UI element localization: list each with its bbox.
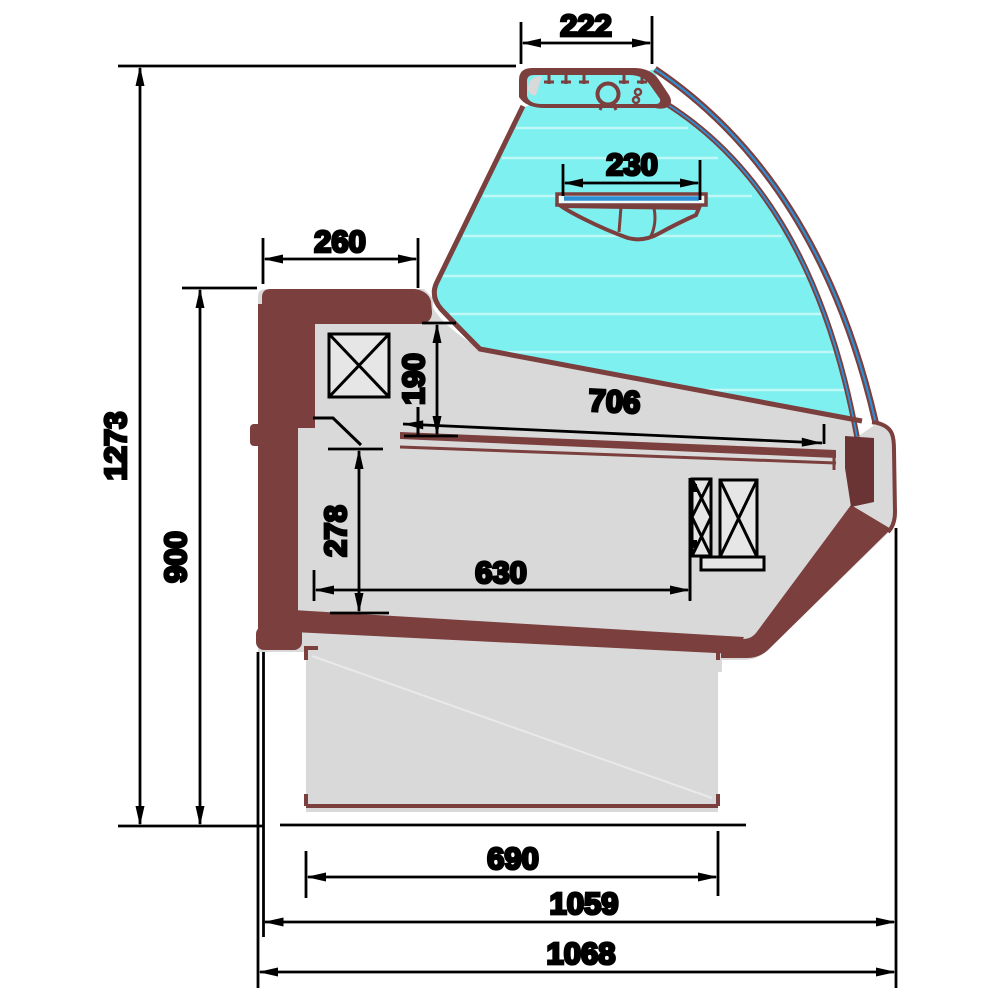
dim-260: 260 bbox=[263, 224, 418, 288]
dim-label-706: 706 bbox=[588, 383, 641, 420]
top-canopy bbox=[519, 68, 671, 110]
dim-label-900: 900 bbox=[158, 531, 193, 583]
dim-222: 222 bbox=[521, 8, 652, 64]
inner-duct-band bbox=[298, 318, 315, 428]
dim-1273: 1273 bbox=[98, 66, 145, 826]
technical-drawing-page: 222 230 260 190 706 bbox=[0, 0, 1000, 1000]
dim-label-1068: 1068 bbox=[547, 936, 616, 971]
dim-label-278: 278 bbox=[318, 505, 353, 557]
insulation-box bbox=[329, 334, 389, 397]
rear-wall-bulge bbox=[250, 424, 262, 446]
dim-1059: 1059 bbox=[264, 886, 897, 927]
dim-690: 690 bbox=[306, 831, 718, 898]
evaporator-box bbox=[720, 480, 757, 557]
display-case-cross-section: 222 230 260 190 706 bbox=[0, 0, 1000, 1000]
dim-label-230: 230 bbox=[606, 147, 658, 182]
dim-label-222: 222 bbox=[560, 8, 612, 43]
lamp-icon bbox=[598, 84, 619, 105]
evaporator-base-plate bbox=[701, 557, 764, 570]
dim-label-1273: 1273 bbox=[98, 412, 133, 481]
rear-wall bbox=[258, 304, 298, 650]
dim-900: 900 bbox=[158, 288, 205, 826]
dim-label-260: 260 bbox=[314, 224, 366, 259]
dim-label-630: 630 bbox=[475, 555, 527, 590]
dim-1068: 1068 bbox=[258, 936, 896, 977]
dim-label-690: 690 bbox=[487, 841, 539, 876]
dim-label-190: 190 bbox=[396, 353, 431, 405]
well-bottom-left-curl bbox=[283, 611, 299, 649]
dim-label-1059: 1059 bbox=[550, 886, 619, 921]
